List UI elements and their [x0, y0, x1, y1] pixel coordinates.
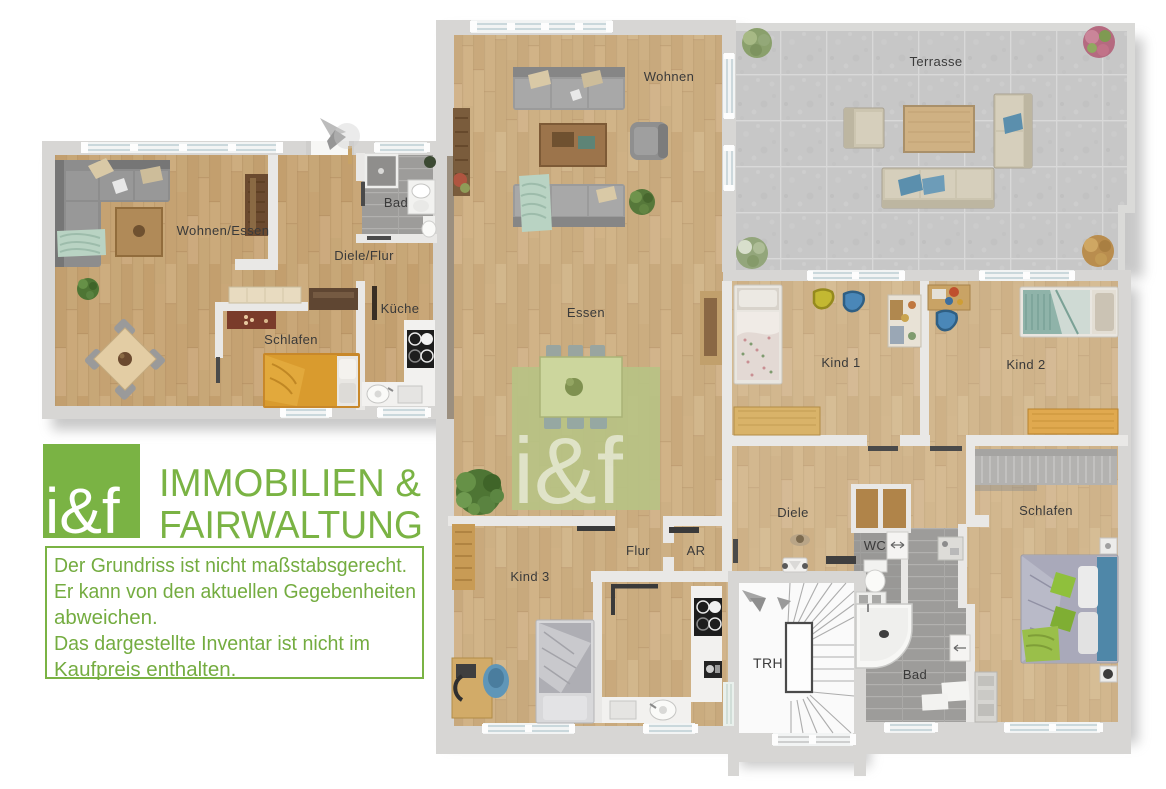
svg-text:Kaufpreis enthalten.: Kaufpreis enthalten.	[54, 658, 236, 681]
svg-text:Kind 1: Kind 1	[821, 355, 860, 370]
svg-text:Flur: Flur	[626, 543, 650, 558]
svg-text:Er kann von den aktuellen Gege: Er kann von den aktuellen Gegebenheiten	[54, 580, 416, 603]
svg-text:Küche: Küche	[381, 301, 420, 316]
svg-text:Bad: Bad	[903, 667, 927, 682]
svg-text:Wohnen/Essen: Wohnen/Essen	[177, 223, 270, 238]
svg-text:Bad: Bad	[384, 195, 408, 210]
svg-text:i&f: i&f	[45, 475, 120, 547]
svg-text:Diele/Flur: Diele/Flur	[334, 248, 394, 263]
svg-text:Das dargestellte Inventar ist: Das dargestellte Inventar ist nicht im	[54, 632, 370, 655]
svg-text:abweichen.: abweichen.	[54, 606, 158, 629]
svg-text:Schlafen: Schlafen	[1019, 503, 1073, 518]
svg-text:Wohnen: Wohnen	[644, 69, 695, 84]
svg-text:Essen: Essen	[567, 305, 605, 320]
svg-text:Kind 2: Kind 2	[1006, 357, 1045, 372]
svg-text:FAIRWALTUNG: FAIRWALTUNG	[159, 504, 423, 547]
svg-text:IMMOBILIEN &: IMMOBILIEN &	[159, 462, 421, 505]
svg-text:Der Grundriss ist nicht maßsta: Der Grundriss ist nicht maßstabsgerecht.	[54, 554, 407, 577]
svg-text:AR: AR	[687, 543, 706, 558]
svg-text:Kind 3: Kind 3	[510, 569, 549, 584]
svg-text:TRH: TRH	[753, 655, 783, 671]
svg-text:WC: WC	[864, 538, 886, 553]
svg-text:i&f: i&f	[513, 418, 624, 523]
svg-text:Terrasse: Terrasse	[909, 54, 962, 69]
svg-text:Schlafen: Schlafen	[264, 332, 318, 347]
svg-text:Diele: Diele	[777, 505, 809, 520]
